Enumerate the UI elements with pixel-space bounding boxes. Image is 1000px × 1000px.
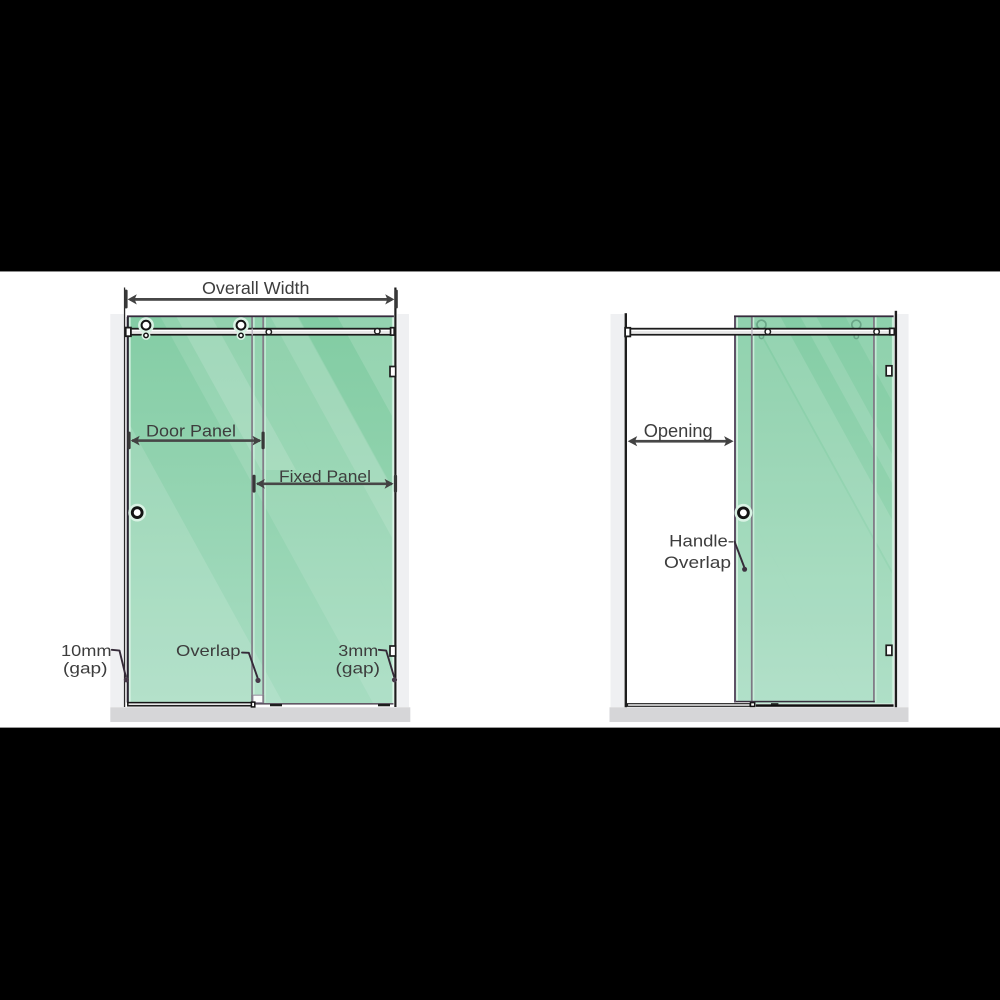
svg-text:Door Panel: Door Panel — [146, 422, 236, 440]
svg-text:(gap): (gap) — [63, 660, 108, 677]
svg-text:Overlap: Overlap — [176, 643, 241, 660]
svg-text:3mm: 3mm — [338, 643, 378, 660]
svg-text:10mm: 10mm — [61, 643, 112, 660]
svg-text:Overlap: Overlap — [664, 554, 731, 572]
svg-text:Overall Width: Overall Width — [202, 278, 310, 298]
svg-text:Handle-: Handle- — [669, 533, 734, 551]
svg-text:Fixed Panel: Fixed Panel — [279, 468, 371, 486]
svg-text:(gap): (gap) — [336, 660, 381, 677]
svg-text:Opening: Opening — [644, 420, 713, 441]
